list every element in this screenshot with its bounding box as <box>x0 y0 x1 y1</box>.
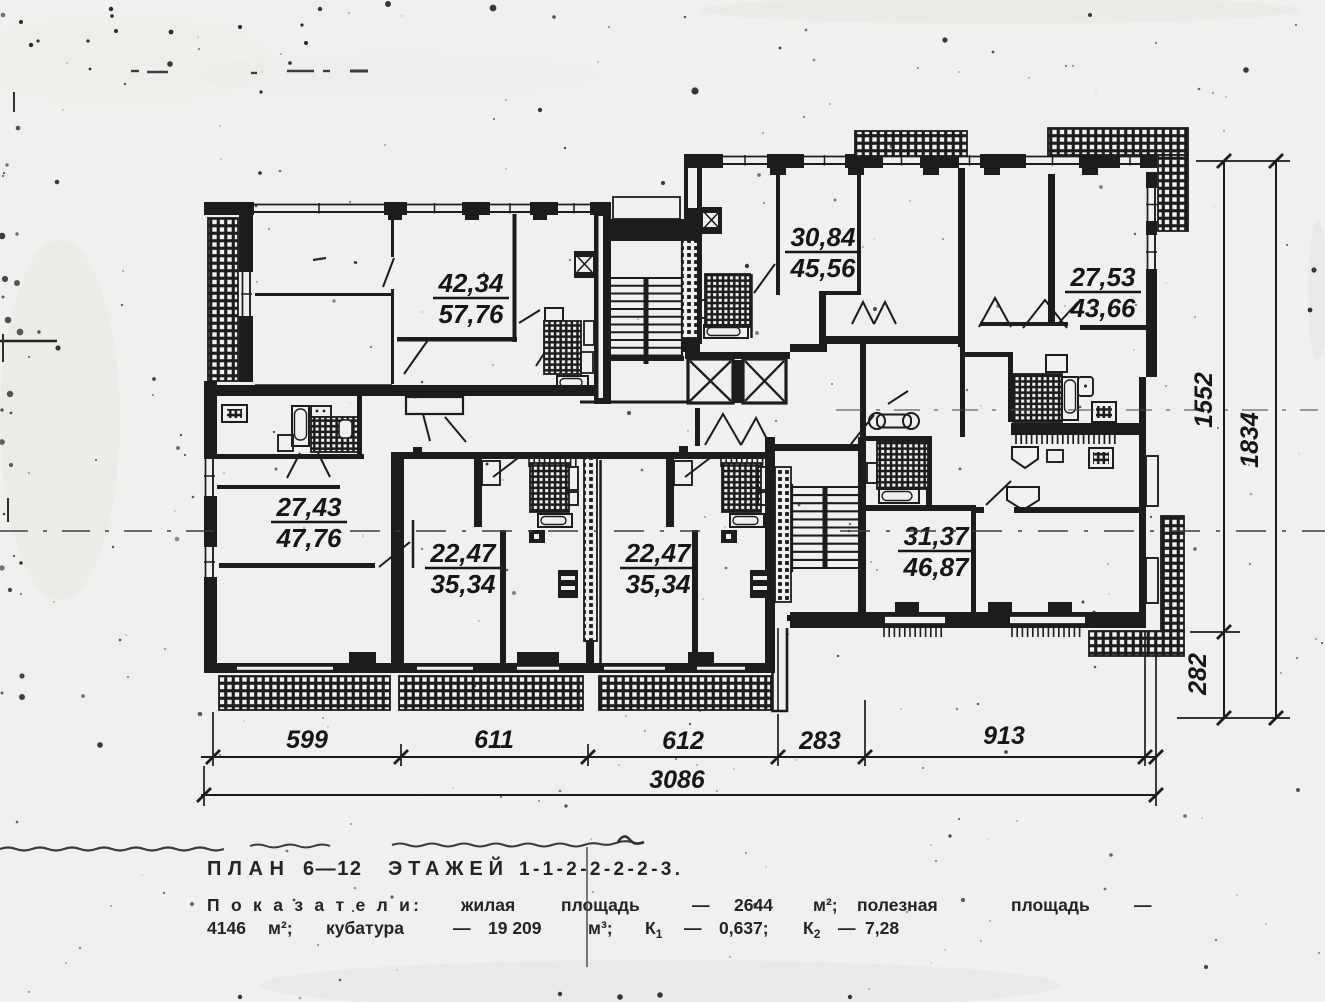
svg-text:612: 612 <box>662 727 704 755</box>
svg-text:282: 282 <box>1184 653 1212 696</box>
svg-text:19 209: 19 209 <box>488 918 542 938</box>
svg-text:—: — <box>453 918 471 938</box>
svg-text:6—12: 6—12 <box>303 858 361 880</box>
svg-text:4146: 4146 <box>207 918 246 938</box>
svg-text:7,28: 7,28 <box>865 918 899 938</box>
svg-text:30,84: 30,84 <box>790 222 856 252</box>
svg-text:283: 283 <box>798 727 841 755</box>
svg-text:42,34: 42,34 <box>437 268 504 298</box>
svg-text:27,53: 27,53 <box>1069 262 1136 292</box>
svg-text:площадь: площадь <box>561 895 640 915</box>
svg-text:611: 611 <box>474 726 514 754</box>
svg-text:жилая: жилая <box>460 895 515 915</box>
svg-text:22,47: 22,47 <box>429 538 497 568</box>
svg-text:45,56: 45,56 <box>789 253 856 283</box>
svg-text:—: — <box>1134 895 1152 915</box>
svg-text:31,37: 31,37 <box>903 521 970 551</box>
svg-text:1552: 1552 <box>1190 372 1218 428</box>
svg-text:3086: 3086 <box>649 766 706 794</box>
svg-text:47,76: 47,76 <box>275 523 342 553</box>
svg-text:м²;: м²; <box>268 918 293 938</box>
svg-text:35,34: 35,34 <box>625 569 691 599</box>
svg-text:м³;: м³; <box>588 918 613 938</box>
svg-text:46,87: 46,87 <box>902 552 970 582</box>
svg-text:1-1-2-2-2-2-3.: 1-1-2-2-2-2-3. <box>519 859 680 880</box>
svg-text:27,43: 27,43 <box>275 492 342 522</box>
svg-text:57,76: 57,76 <box>438 299 504 329</box>
svg-text:43,66: 43,66 <box>1069 293 1136 323</box>
svg-text:—: — <box>692 895 710 915</box>
svg-text:22,47: 22,47 <box>624 538 692 568</box>
svg-text:м²;: м²; <box>813 895 838 915</box>
svg-text:—: — <box>838 918 856 938</box>
svg-text:913: 913 <box>983 722 1025 750</box>
svg-text:1834: 1834 <box>1236 412 1264 468</box>
svg-text:—: — <box>684 918 702 938</box>
svg-text:кубатура: кубатура <box>326 918 404 938</box>
svg-text:35,34: 35,34 <box>430 569 496 599</box>
svg-text:599: 599 <box>286 726 328 754</box>
svg-text:полезная: полезная <box>857 895 938 915</box>
svg-text:площадь: площадь <box>1011 895 1090 915</box>
svg-text:0,637;: 0,637; <box>719 918 769 938</box>
